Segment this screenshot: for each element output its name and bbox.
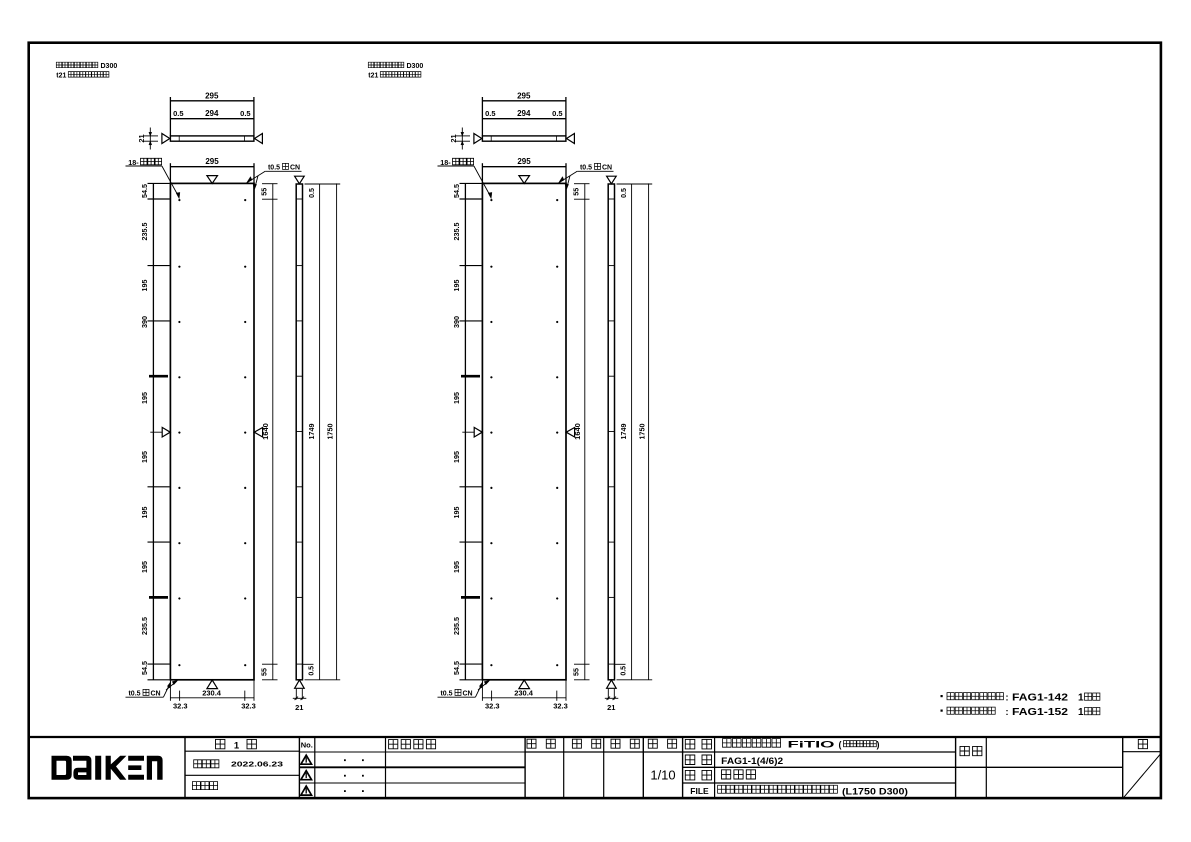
svg-text:CN: CN [602, 165, 612, 172]
svg-text:1: 1 [1078, 707, 1084, 718]
svg-text:2022.06.23: 2022.06.23 [231, 759, 283, 768]
svg-text:t0.5: t0.5 [440, 691, 452, 698]
svg-text:FAG1-1(4/6)2: FAG1-1(4/6)2 [721, 756, 783, 766]
svg-text:CN: CN [150, 691, 160, 698]
svg-text:(L1750 D300): (L1750 D300) [842, 787, 908, 797]
svg-text::: : [1006, 693, 1009, 703]
svg-text:D300: D300 [407, 63, 424, 70]
svg-text:t0.5: t0.5 [268, 165, 280, 172]
svg-text:t21: t21 [368, 72, 378, 79]
svg-text:FiTIO: FiTIO [788, 739, 835, 750]
svg-text:18-: 18- [440, 158, 451, 167]
svg-text:FILE: FILE [690, 786, 709, 796]
svg-text::: : [1006, 707, 1009, 717]
svg-text:1: 1 [234, 740, 240, 751]
svg-text:CN: CN [290, 165, 300, 172]
svg-text:FAG1-152: FAG1-152 [1012, 707, 1069, 718]
svg-text:FAG1-142: FAG1-142 [1012, 693, 1069, 704]
svg-text:CN: CN [462, 691, 472, 698]
svg-text:t21: t21 [56, 72, 66, 79]
svg-text:): ) [877, 740, 880, 750]
svg-text:(: ( [839, 740, 842, 750]
svg-text:1/10: 1/10 [650, 768, 675, 783]
svg-text:t0.5: t0.5 [580, 165, 592, 172]
svg-text:1: 1 [1078, 693, 1084, 704]
svg-text:D300: D300 [101, 63, 118, 70]
svg-text:t0.5: t0.5 [128, 691, 140, 698]
svg-text:18-: 18- [128, 158, 139, 167]
svg-text:No.: No. [301, 740, 313, 749]
